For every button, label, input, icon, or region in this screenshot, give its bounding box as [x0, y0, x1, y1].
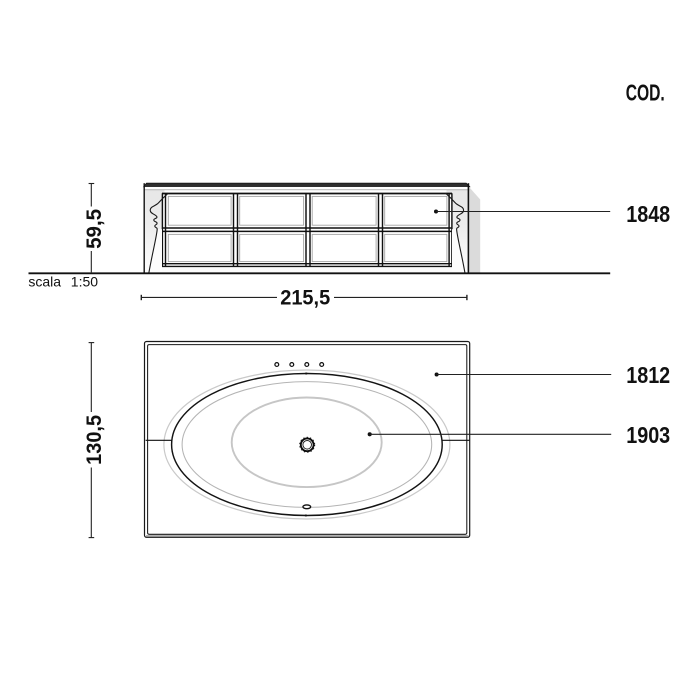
svg-text:1903: 1903: [626, 422, 670, 448]
svg-text:130,5: 130,5: [82, 415, 106, 465]
svg-text:215,5: 215,5: [280, 286, 330, 310]
svg-text:1:50: 1:50: [71, 273, 98, 289]
svg-text:59,5: 59,5: [82, 209, 106, 249]
svg-text:1812: 1812: [626, 362, 670, 388]
svg-text:1848: 1848: [626, 202, 670, 228]
svg-text:COD.: COD.: [626, 81, 665, 107]
svg-text:scala: scala: [28, 273, 61, 289]
